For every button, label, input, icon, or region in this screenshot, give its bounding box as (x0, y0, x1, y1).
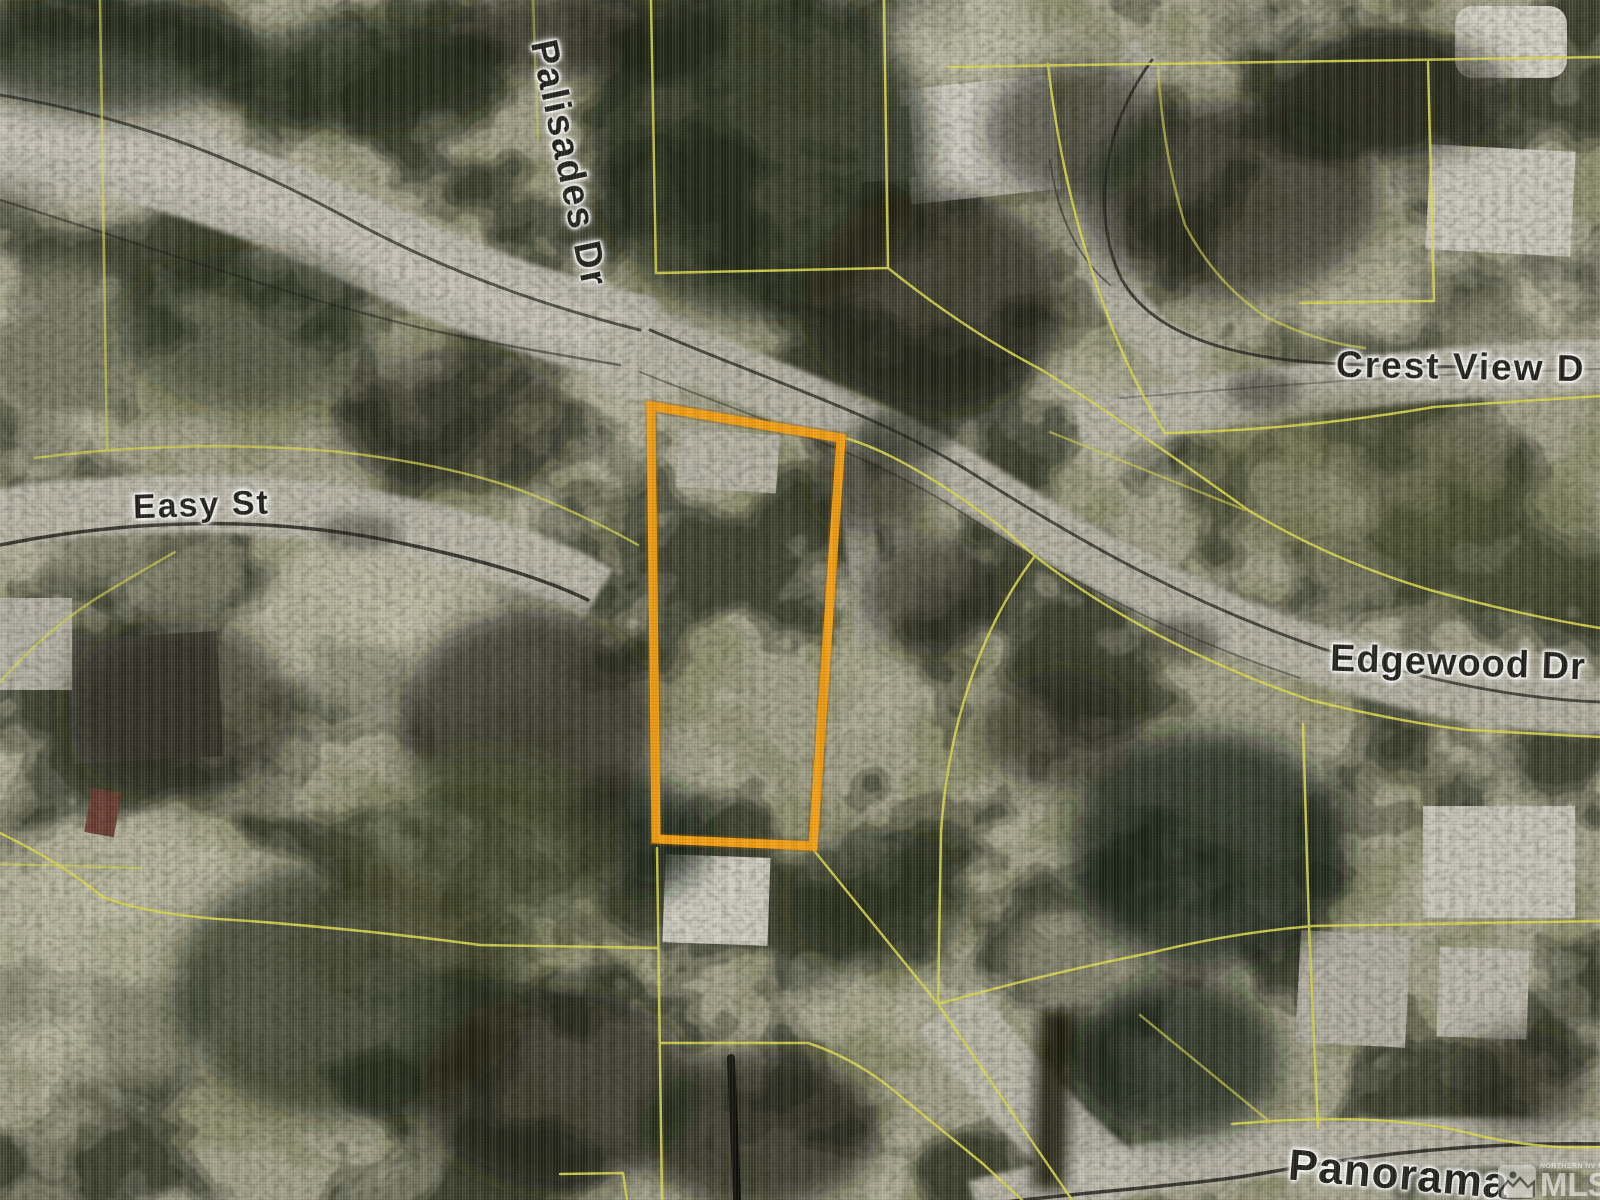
street-label-crest-view: Crest View D (1336, 344, 1586, 390)
grain (0, 0, 1600, 1200)
aerial-parcel-map: Palisades Dr Easy St Crest View D Edgewo… (0, 0, 1600, 1200)
street-label-easy-st: Easy St (132, 484, 270, 528)
street-label-edgewood-dr: Edgewood Dr (1329, 638, 1586, 690)
map-imagery (0, 0, 1600, 1200)
